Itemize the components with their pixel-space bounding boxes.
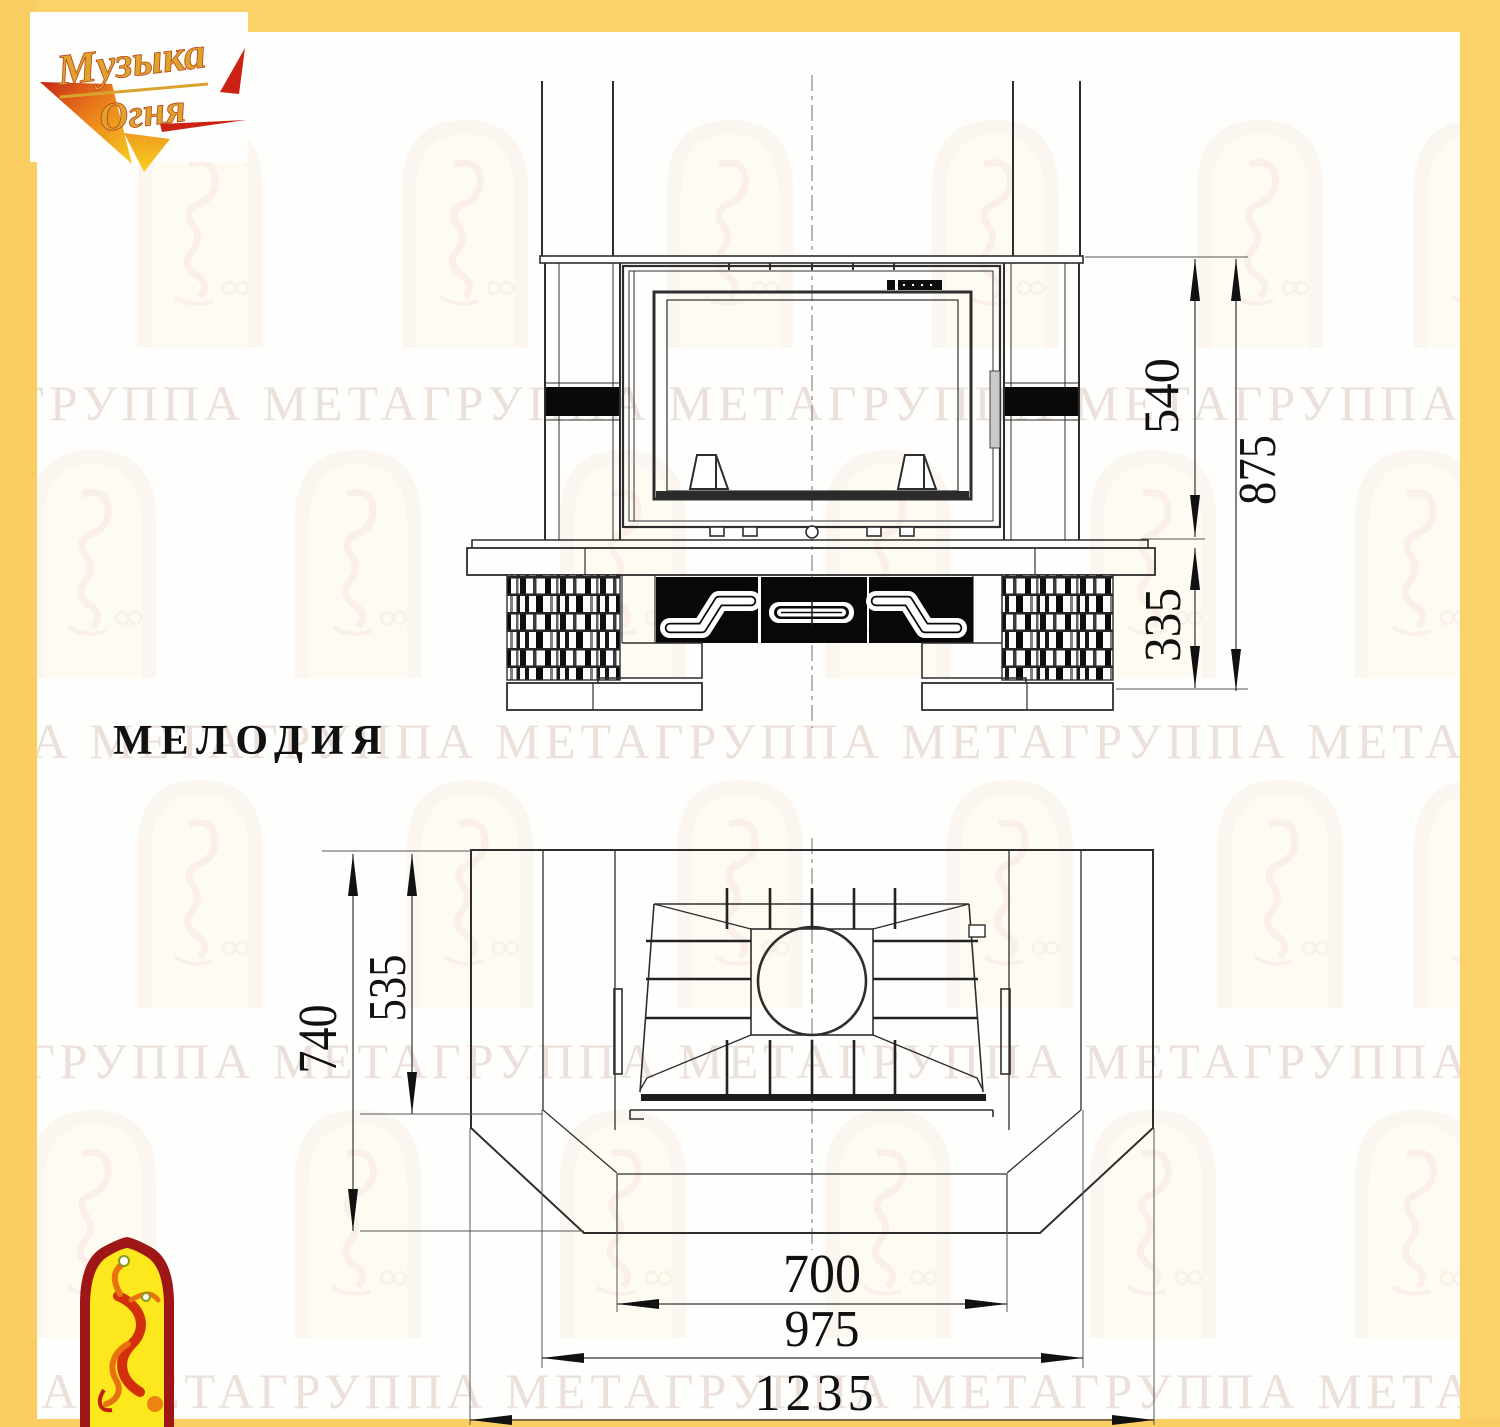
- svg-text:540: 540: [1133, 358, 1189, 434]
- svg-text:740: 740: [287, 1005, 348, 1074]
- svg-text:875: 875: [1229, 435, 1287, 505]
- svg-text:ГРУППА МЕТАГРУППА МЕТАГРУППА М: ГРУППА МЕТАГРУППА МЕТАГРУППА МЕТАГРУППА …: [0, 1033, 1500, 1089]
- svg-text:975: 975: [785, 1301, 860, 1358]
- svg-text:МЕЛОДИЯ: МЕЛОДИЯ: [113, 718, 390, 764]
- svg-text:335: 335: [1135, 588, 1192, 662]
- svg-text:ГРУППА МЕТАГРУППА МЕТАГРУППА М: ГРУППА МЕТАГРУППА МЕТАГРУППА МЕТАГРУППА …: [0, 375, 1500, 431]
- svg-text:700: 700: [783, 1243, 861, 1304]
- svg-text:535: 535: [359, 955, 417, 1022]
- svg-text:ГРУППА МЕТАГРУППА МЕТАГРУППА М: ГРУППА МЕТАГРУППА МЕТАГРУППА МЕТАГРУППА …: [0, 1363, 1476, 1419]
